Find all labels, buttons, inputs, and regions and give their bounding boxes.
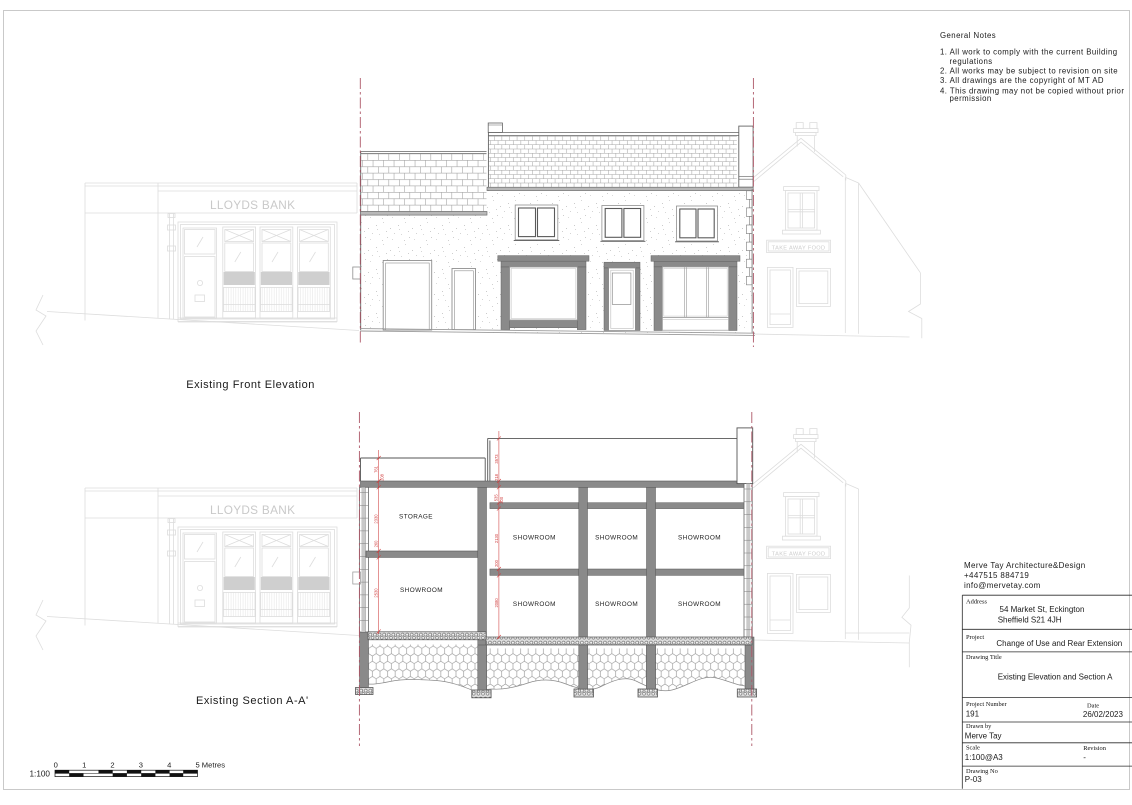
- svg-text:SHOWROOM: SHOWROOM: [400, 587, 443, 594]
- svg-text:2080: 2080: [494, 598, 499, 608]
- svg-text:1. All work to comply with the: 1. All work to comply with the current B…: [940, 47, 1118, 56]
- svg-text:200: 200: [494, 559, 499, 567]
- svg-text:Merve Tay: Merve Tay: [965, 731, 1002, 740]
- svg-text:Existing Elevation and Section: Existing Elevation and Section A: [998, 673, 1113, 682]
- svg-text:2530: 2530: [374, 588, 379, 598]
- svg-text:SHOWROOM: SHOWROOM: [595, 601, 638, 608]
- svg-text:STORAGE: STORAGE: [399, 513, 433, 520]
- svg-text:54 Market St, Eckington: 54 Market St, Eckington: [1000, 605, 1085, 614]
- svg-text:3573: 3573: [494, 454, 499, 464]
- svg-text:SHOWROOM: SHOWROOM: [595, 535, 638, 542]
- svg-text:SHOWROOM: SHOWROOM: [513, 601, 556, 608]
- svg-text:Sheffield S21 4JH: Sheffield S21 4JH: [998, 616, 1062, 625]
- svg-text:3: 3: [139, 760, 143, 769]
- svg-text:Drawn by: Drawn by: [966, 723, 992, 730]
- svg-text:Existing Section A-A': Existing Section A-A': [196, 695, 309, 707]
- svg-text:TAKE AWAY FOOD: TAKE AWAY FOOD: [772, 245, 826, 251]
- svg-text:P-03: P-03: [965, 775, 982, 784]
- svg-text:3. All drawings are the copyri: 3. All drawings are the copyright of MT …: [940, 76, 1104, 85]
- svg-text:Drawing No: Drawing No: [966, 768, 998, 775]
- svg-text:-: -: [1083, 753, 1086, 762]
- svg-text:Merve Tay Architecture&Design: Merve Tay Architecture&Design: [964, 561, 1086, 570]
- svg-text:208: 208: [379, 473, 384, 481]
- svg-text:SHOWROOM: SHOWROOM: [678, 535, 721, 542]
- svg-text:5: 5: [195, 760, 199, 769]
- svg-text:1:100: 1:100: [30, 770, 51, 779]
- svg-text:1:100@A3: 1:100@A3: [965, 753, 1003, 762]
- svg-text:761: 761: [374, 465, 379, 473]
- svg-text:191: 191: [966, 710, 980, 719]
- svg-text:Project: Project: [966, 634, 984, 641]
- svg-text:Scale: Scale: [966, 745, 980, 752]
- svg-text:300: 300: [499, 496, 504, 504]
- svg-text:2130: 2130: [494, 533, 499, 543]
- svg-text:1: 1: [82, 760, 86, 769]
- svg-text:2330: 2330: [374, 514, 379, 524]
- svg-text:LLOYDS BANK: LLOYDS BANK: [210, 198, 295, 212]
- svg-text:0: 0: [54, 760, 58, 769]
- svg-text:26/02/2023: 26/02/2023: [1083, 710, 1124, 719]
- svg-text:Drawing Title: Drawing Title: [966, 654, 1002, 661]
- svg-text:General Notes: General Notes: [940, 31, 996, 40]
- svg-text:218: 218: [494, 473, 499, 481]
- svg-text:Metres: Metres: [202, 760, 225, 769]
- svg-text:4: 4: [167, 760, 171, 769]
- svg-text:Revision: Revision: [1083, 745, 1107, 752]
- svg-text:Change of Use and Rear Extensi: Change of Use and Rear Extension: [996, 639, 1122, 648]
- svg-text:Date: Date: [1087, 702, 1099, 709]
- svg-text:info@mervetay.com: info@mervetay.com: [964, 581, 1041, 590]
- svg-text:2. All works may be subject to: 2. All works may be subject to revision …: [940, 66, 1118, 75]
- svg-text:535: 535: [493, 494, 498, 502]
- svg-text:SHOWROOM: SHOWROOM: [678, 601, 721, 608]
- svg-text:regulations: regulations: [950, 57, 993, 66]
- svg-text:Existing Front Elevation: Existing Front Elevation: [186, 379, 315, 391]
- svg-text:+447515 884719: +447515 884719: [964, 571, 1029, 580]
- svg-text:260: 260: [374, 540, 379, 548]
- svg-text:2: 2: [110, 760, 114, 769]
- svg-text:SHOWROOM: SHOWROOM: [513, 535, 556, 542]
- svg-text:Project Number: Project Number: [966, 701, 1008, 708]
- svg-text:Address: Address: [966, 599, 987, 606]
- svg-text:permission: permission: [950, 94, 992, 103]
